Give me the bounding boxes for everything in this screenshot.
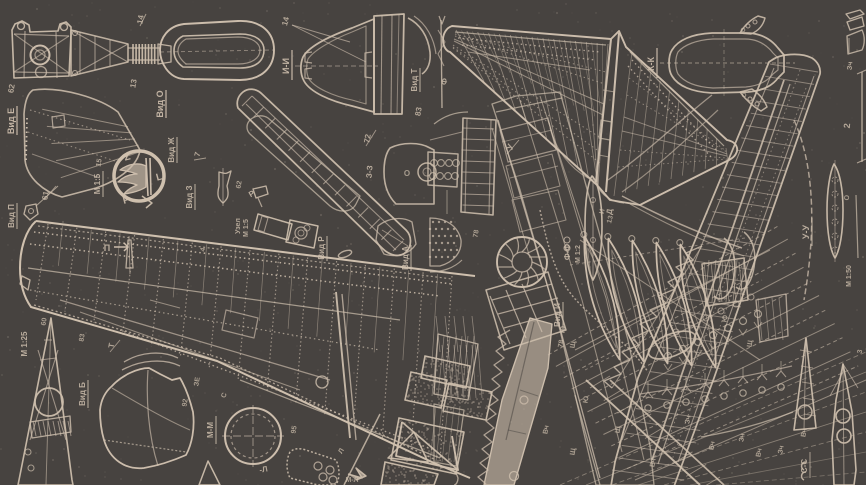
svg-text:Зч: Зч [738,433,746,443]
svg-text:Вид О: Вид О [155,90,165,117]
svg-text:Зч: Зч [777,445,785,455]
svg-text:М-Л: М-Л [345,477,358,484]
svg-text:60: 60 [40,317,48,326]
svg-text:95: 95 [290,425,298,434]
svg-text:Узел: Узел [235,218,242,234]
svg-text:Вид И: Вид И [553,303,562,327]
svg-text:Ю: Ю [721,315,729,323]
svg-text:К-К: К-К [646,57,656,71]
svg-text:78: 78 [472,229,480,238]
svg-text:2: 2 [842,123,852,129]
svg-text:М 1:5: М 1:5 [93,173,102,194]
svg-text:М 1:5: М 1:5 [243,219,250,237]
svg-text:Вид П: Вид П [7,204,16,228]
svg-text:83: 83 [78,333,86,342]
svg-text:У-У: У-У [801,225,811,240]
svg-text:Ю: Ю [582,396,590,404]
svg-text:П: П [104,243,110,253]
svg-text:О: О [404,169,410,178]
svg-text:З-З: З-З [364,165,374,178]
svg-text:М 1:25: М 1:25 [20,331,29,356]
svg-text:Вид З: Вид З [185,185,194,208]
svg-text:15: 15 [95,158,103,167]
svg-text:И-И: И-И [281,58,291,74]
svg-text:Зч: Зч [847,61,855,70]
svg-text:Вид Ж: Вид Ж [167,137,176,163]
svg-text:Вид Б: Вид Б [78,382,87,406]
svg-text:Вид Е: Вид Е [6,108,16,134]
svg-text:М 1:2: М 1:2 [575,245,582,263]
svg-text:92: 92 [181,398,189,407]
svg-text:М-М: М-М [206,422,215,438]
svg-text:Ю: Ю [559,326,567,334]
svg-text:62: 62 [235,180,243,189]
svg-text:Вид Т: Вид Т [410,68,419,91]
